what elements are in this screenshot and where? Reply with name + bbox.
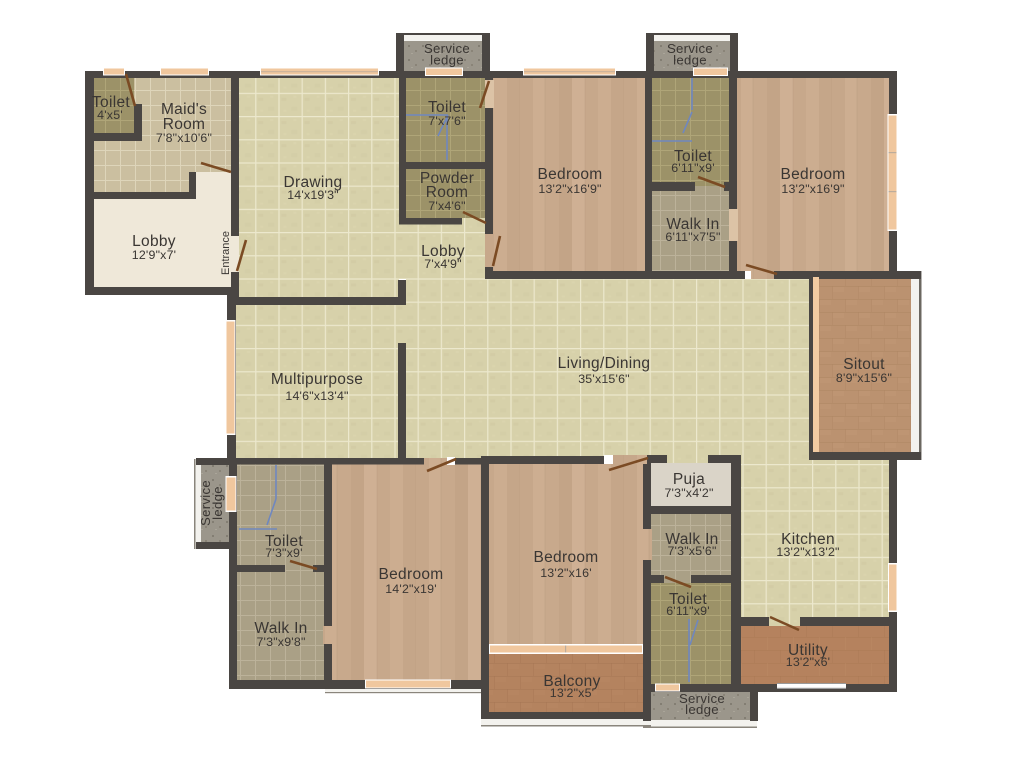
svg-text:ledge: ledge	[430, 53, 464, 68]
svg-text:ledge: ledge	[685, 702, 719, 717]
svg-text:6'11"x9': 6'11"x9'	[671, 161, 715, 175]
svg-text:13'2"x16': 13'2"x16'	[540, 566, 592, 580]
svg-text:ledge: ledge	[210, 486, 225, 520]
svg-text:ledge: ledge	[673, 53, 707, 68]
svg-text:Bedroom: Bedroom	[538, 166, 603, 183]
svg-text:13'2"x5': 13'2"x5'	[550, 686, 595, 700]
svg-text:7'3"x9': 7'3"x9'	[265, 546, 302, 560]
svg-text:7'3"x9'8": 7'3"x9'8"	[256, 635, 305, 649]
svg-text:Entrance: Entrance	[220, 231, 232, 275]
svg-text:Living/Dining: Living/Dining	[558, 355, 651, 372]
svg-text:7'8"x10'6": 7'8"x10'6"	[156, 131, 212, 145]
svg-text:Bedroom: Bedroom	[534, 549, 599, 566]
svg-text:13'2"x13'2": 13'2"x13'2"	[776, 545, 839, 559]
svg-text:35'x15'6": 35'x15'6"	[578, 372, 630, 386]
svg-text:14'x19'3": 14'x19'3"	[287, 188, 339, 202]
svg-text:13'2"x6': 13'2"x6'	[786, 655, 831, 669]
svg-text:6'11"x9': 6'11"x9'	[666, 604, 710, 618]
svg-text:7'x4'9": 7'x4'9"	[424, 257, 461, 271]
svg-text:13'2"x16'9": 13'2"x16'9"	[538, 182, 601, 196]
svg-text:14'6"x13'4": 14'6"x13'4"	[285, 389, 348, 403]
svg-text:7'x7'6": 7'x7'6"	[428, 114, 465, 128]
svg-text:7'x4'6": 7'x4'6"	[428, 199, 465, 213]
svg-text:Bedroom: Bedroom	[781, 166, 846, 183]
svg-text:12'9"x7': 12'9"x7'	[132, 248, 177, 262]
svg-text:8'9"x15'6": 8'9"x15'6"	[836, 371, 892, 385]
svg-text:Multipurpose: Multipurpose	[271, 371, 363, 388]
svg-text:Bedroom: Bedroom	[379, 566, 444, 583]
svg-text:6'11"x7'5": 6'11"x7'5"	[665, 230, 720, 244]
svg-text:14'2"x19': 14'2"x19'	[385, 582, 437, 596]
svg-text:7'3"x4'2": 7'3"x4'2"	[664, 486, 713, 500]
svg-text:7'3"x5'6": 7'3"x5'6"	[667, 544, 716, 558]
svg-text:13'2"x16'9": 13'2"x16'9"	[781, 182, 844, 196]
svg-text:4'x5': 4'x5'	[97, 108, 123, 122]
